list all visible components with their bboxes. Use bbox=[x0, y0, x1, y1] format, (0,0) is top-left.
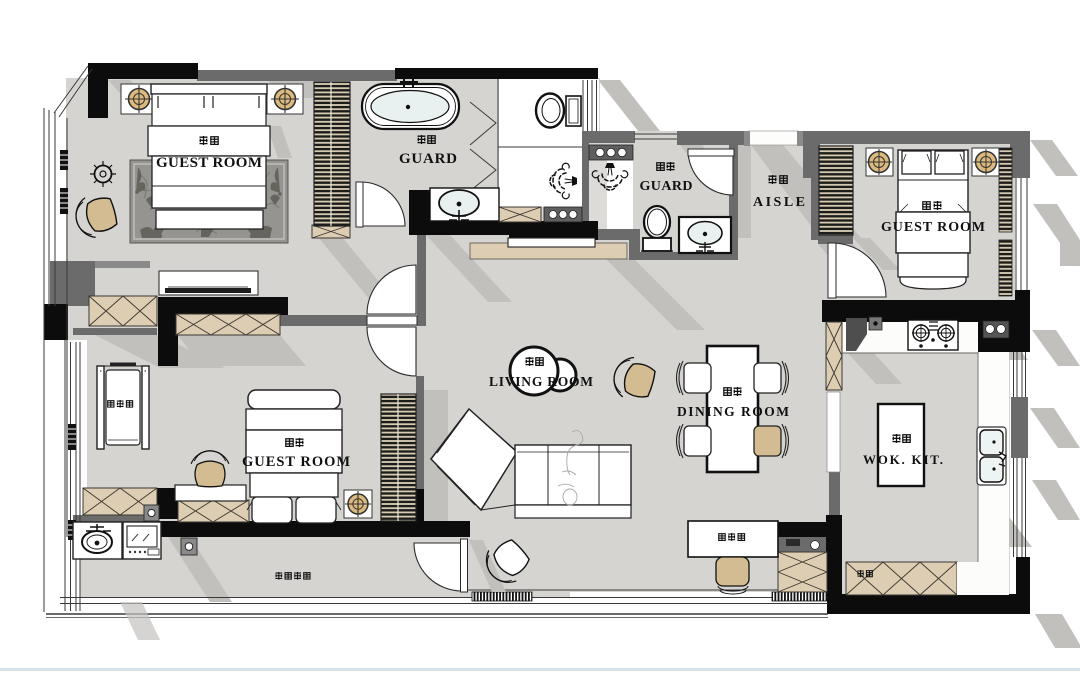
svg-text:GUARD: GUARD bbox=[399, 151, 457, 167]
svg-text:GUEST ROOM: GUEST ROOM bbox=[156, 155, 262, 171]
svg-text:LIVING ROOM: LIVING ROOM bbox=[489, 374, 593, 389]
svg-text:GUARD: GUARD bbox=[640, 179, 693, 194]
svg-text:WOK. KIT.: WOK. KIT. bbox=[863, 452, 943, 467]
svg-text:AISLE: AISLE bbox=[753, 195, 805, 210]
svg-text:GUEST ROOM: GUEST ROOM bbox=[881, 220, 985, 235]
svg-text:GUEST ROOM: GUEST ROOM bbox=[242, 454, 350, 470]
